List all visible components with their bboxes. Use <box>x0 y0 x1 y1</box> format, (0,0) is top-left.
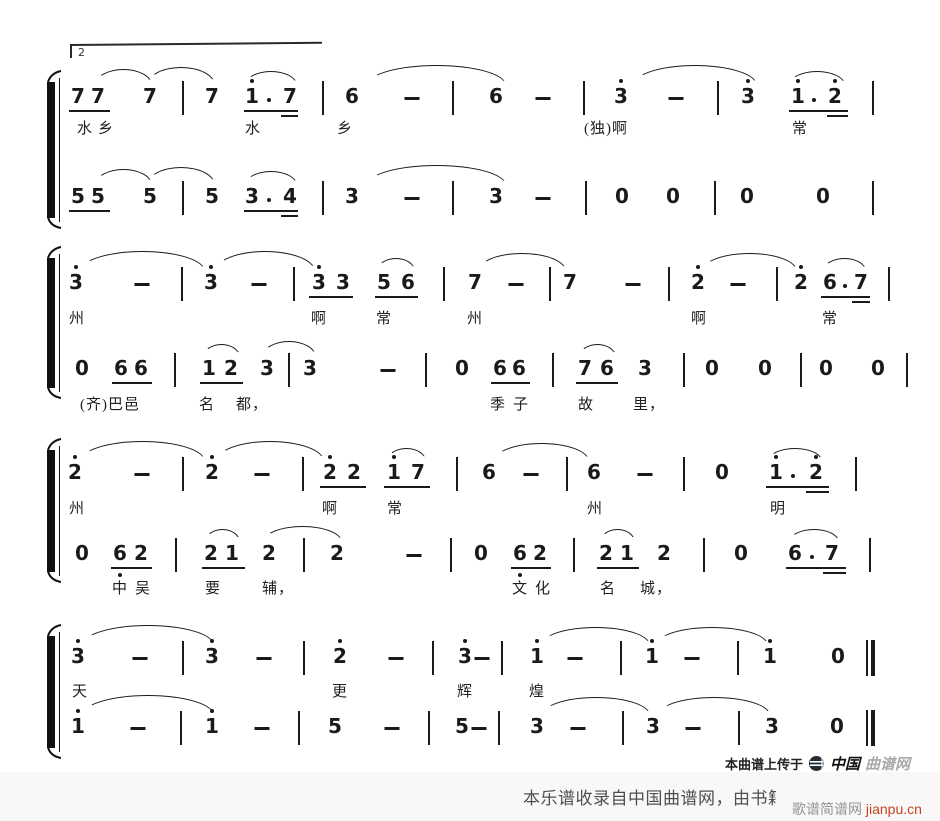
octave-dot-below <box>118 573 122 577</box>
slur-arc <box>600 529 635 542</box>
note: 3 <box>336 272 350 292</box>
system-bracket-hook-bottom <box>46 386 62 405</box>
barline <box>303 538 305 572</box>
slur-arc <box>656 627 768 645</box>
lyric-syllable: 州 <box>69 500 85 518</box>
duration-dash <box>135 473 150 476</box>
duration-dash <box>407 554 422 557</box>
beam-line-2 <box>806 491 829 493</box>
barline <box>683 457 685 491</box>
lyric-syllable: 要 <box>205 580 221 598</box>
slur-arc <box>215 251 315 271</box>
note: 2 <box>599 543 613 563</box>
note: 2 <box>330 543 344 563</box>
barline <box>583 81 585 115</box>
barline <box>452 81 454 115</box>
note: 3 <box>646 716 660 736</box>
barline <box>549 267 551 301</box>
gepu-site-label: 歌谱简谱网 <box>792 801 862 817</box>
barline <box>428 711 430 745</box>
note: 0 <box>816 186 830 206</box>
duration-dash <box>669 97 684 100</box>
lyric-syllable: 啊 <box>322 500 338 518</box>
note: 5 <box>143 186 157 206</box>
lyric-syllable: 城， <box>640 580 672 598</box>
beam-line <box>320 486 366 488</box>
lyric-syllable: 都， <box>236 396 268 414</box>
site-name-suffix: 曲谱网 <box>865 753 910 774</box>
note: 1 <box>71 716 85 736</box>
note: 0 <box>734 543 748 563</box>
note: 0 <box>819 358 833 378</box>
octave-dot-above <box>76 639 80 643</box>
lyric-syllable: 天 <box>72 683 88 701</box>
note: 6 <box>513 543 527 563</box>
volta-label: 2 <box>78 46 85 59</box>
slur-arc <box>789 71 845 85</box>
barline <box>181 267 183 301</box>
system-bracket-hook-top <box>46 245 62 264</box>
volta-tick <box>70 44 72 58</box>
note: 6 <box>482 462 496 482</box>
lyric-syllable: 辅， <box>262 580 294 598</box>
beam-line <box>786 567 846 569</box>
lyric-syllable: 常 <box>387 500 403 518</box>
beam-line <box>112 382 152 384</box>
note: 7 <box>71 86 85 106</box>
duration-dash <box>257 657 272 660</box>
duration-dash <box>389 657 404 660</box>
gepu-credit: 歌谱简谱网 jianpu.cn <box>792 799 922 819</box>
note: 0 <box>871 358 885 378</box>
note: 1 <box>645 646 659 666</box>
note: 3 <box>345 186 359 206</box>
system-bracket-hook-bottom <box>46 216 62 235</box>
barline <box>620 641 622 675</box>
note: 3 <box>489 186 503 206</box>
barline <box>432 641 434 675</box>
duration-dash <box>568 657 583 660</box>
barline <box>180 711 182 745</box>
note: 1 <box>620 543 634 563</box>
lyric-syllable: 明 <box>770 500 786 518</box>
duration-dash <box>135 283 150 286</box>
barline <box>293 267 295 301</box>
barline <box>668 267 670 301</box>
slur-arc <box>95 169 152 185</box>
octave-dot-above <box>650 639 654 643</box>
note: 3 <box>260 358 274 378</box>
slur-arc <box>633 65 757 85</box>
barline <box>425 353 427 387</box>
barline <box>906 353 908 387</box>
beam-line-2 <box>281 215 298 217</box>
barline <box>776 267 778 301</box>
note: 0 <box>830 716 844 736</box>
barline <box>182 181 184 215</box>
duration-dash <box>626 283 641 286</box>
note: 1 <box>530 646 544 666</box>
lyric-syllable: 里， <box>633 396 665 414</box>
note: 7 <box>578 358 592 378</box>
barline <box>303 641 305 675</box>
note: 2 <box>533 543 547 563</box>
octave-dot-below <box>518 573 522 577</box>
note: 3 <box>69 272 83 292</box>
note: 1 <box>202 358 216 378</box>
barline <box>855 457 857 491</box>
lyric-syllable: 州 <box>467 310 483 328</box>
barline <box>302 457 304 491</box>
final-barline-thick <box>871 640 875 676</box>
lyric-syllable: 常 <box>822 310 838 328</box>
slur-arc <box>768 448 822 461</box>
lyric-syllable: 煌 <box>529 683 545 701</box>
barline <box>443 267 445 301</box>
note: 5 <box>71 186 85 206</box>
duration-dash <box>475 657 490 660</box>
beam-line <box>491 382 530 384</box>
lyric-syllable: (齐)巴邑 <box>80 396 140 414</box>
augmentation-dot <box>812 98 816 102</box>
system-bracket <box>47 636 55 748</box>
duration-dash <box>133 657 148 660</box>
upload-credit: 本曲谱上传于 中国曲谱网 <box>725 753 910 774</box>
barline <box>869 538 871 572</box>
note: 3 <box>765 716 779 736</box>
barline <box>182 641 184 675</box>
note: 2 <box>347 462 361 482</box>
note: 6 <box>493 358 507 378</box>
note: 6 <box>600 358 614 378</box>
system-bracket-hook-top <box>46 69 62 88</box>
note: 6 <box>823 272 837 292</box>
note: 7 <box>563 272 577 292</box>
system-bracket-line <box>59 254 60 392</box>
augmentation-dot <box>267 198 271 202</box>
barline <box>872 81 874 115</box>
system-bracket <box>47 450 55 572</box>
beam-line <box>821 296 870 298</box>
lyric-syllable: 文 <box>512 580 528 598</box>
slur-arc <box>541 627 650 645</box>
lyric-syllable: 子 <box>513 396 529 414</box>
octave-dot-above <box>76 709 80 713</box>
beam-line <box>244 210 298 212</box>
barline <box>800 353 802 387</box>
note: 1 <box>769 462 783 482</box>
slur-arc <box>387 448 426 461</box>
barline <box>322 81 324 115</box>
slur-arc <box>542 697 650 715</box>
barline <box>717 81 719 115</box>
barline <box>872 181 874 215</box>
duration-dash <box>509 283 524 286</box>
augmentation-dot <box>810 555 814 559</box>
collection-note-text: 本乐谱收录自中国曲谱网，由书 <box>523 789 768 808</box>
note: 3 <box>312 272 326 292</box>
duration-dash <box>381 369 396 372</box>
barline <box>174 353 176 387</box>
final-barline-thin <box>866 640 868 676</box>
slur-arc <box>216 441 324 461</box>
note: 3 <box>614 86 628 106</box>
barline <box>501 641 503 675</box>
note: 3 <box>205 646 219 666</box>
barline <box>288 353 290 387</box>
lyric-syllable: 名 <box>600 580 616 598</box>
beam-line-2 <box>281 115 298 117</box>
note: 1 <box>225 543 239 563</box>
note: 6 <box>345 86 359 106</box>
octave-dot-above <box>338 639 342 643</box>
duration-dash <box>252 283 267 286</box>
beam-line <box>244 110 298 112</box>
lyric-syllable: 州 <box>587 500 603 518</box>
lyric-syllable: 名 <box>199 396 215 414</box>
octave-dot-above <box>328 455 332 459</box>
note: 0 <box>758 358 772 378</box>
lyric-syllable: 水 <box>77 120 93 138</box>
barline <box>175 538 177 572</box>
note: 0 <box>715 462 729 482</box>
barline <box>552 353 554 387</box>
beam-line <box>766 486 829 488</box>
slur-arc <box>579 344 616 357</box>
slur-arc <box>82 695 214 715</box>
note: 1 <box>791 86 805 106</box>
note: 7 <box>854 272 868 292</box>
note: 7 <box>91 86 105 106</box>
barline <box>738 711 740 745</box>
lyric-syllable: 辉 <box>457 683 473 701</box>
note: 1 <box>205 716 219 736</box>
note: 1 <box>387 462 401 482</box>
note: 7 <box>205 86 219 106</box>
barline <box>683 353 685 387</box>
note: 6 <box>587 462 601 482</box>
barline <box>714 181 716 215</box>
note: 2 <box>204 543 218 563</box>
barline <box>703 538 705 572</box>
duration-dash <box>524 473 539 476</box>
note: 3 <box>458 646 472 666</box>
qupu-logo-icon <box>808 755 825 772</box>
note: 6 <box>134 358 148 378</box>
augmentation-dot <box>843 284 847 288</box>
lyric-syllable: 常 <box>792 120 808 138</box>
note: 2 <box>691 272 705 292</box>
note: 7 <box>825 543 839 563</box>
beam-line <box>111 567 152 569</box>
octave-dot-above <box>209 265 213 269</box>
note: 2 <box>809 462 823 482</box>
barline <box>182 81 184 115</box>
system-bracket-hook-top <box>46 623 62 642</box>
note: 2 <box>68 462 82 482</box>
lyric-syllable: 吴 <box>135 580 151 598</box>
note: 1 <box>245 86 259 106</box>
barline <box>737 641 739 675</box>
slur-arc <box>245 171 297 185</box>
duration-dash <box>405 197 420 200</box>
augmentation-dot <box>267 98 271 102</box>
barline <box>452 181 454 215</box>
system-bracket-line <box>59 78 60 222</box>
note: 7 <box>143 86 157 106</box>
site-name-cn: 中国 <box>830 753 860 774</box>
jianpu-link[interactable]: jianpu.cn <box>866 801 922 817</box>
note: 7 <box>283 86 297 106</box>
note: 2 <box>333 646 347 666</box>
beam-line <box>375 296 418 298</box>
slur-arc <box>245 71 297 85</box>
duration-dash <box>255 473 270 476</box>
barline <box>566 457 568 491</box>
note: 0 <box>831 646 845 666</box>
note: 6 <box>113 543 127 563</box>
duration-dash <box>686 727 701 730</box>
lyric-syllable: 中 <box>112 580 128 598</box>
system-bracket <box>47 258 55 388</box>
beam-line <box>309 296 353 298</box>
note: 2 <box>224 358 238 378</box>
octave-dot-above <box>799 265 803 269</box>
octave-dot-above <box>463 639 467 643</box>
note: 6 <box>401 272 415 292</box>
note: 6 <box>114 358 128 378</box>
slur-arc <box>147 67 215 85</box>
barline <box>888 267 890 301</box>
beam-line <box>511 567 551 569</box>
lyric-syllable: 水 <box>245 120 261 138</box>
slur-arc <box>82 625 214 645</box>
duration-dash <box>405 97 420 100</box>
beam-line <box>597 567 639 569</box>
final-barline-thin <box>866 710 868 746</box>
lyric-syllable: 乡 <box>337 120 353 138</box>
note: 0 <box>75 543 89 563</box>
collection-note: 本乐谱收录自中国曲谱网，由书籍 <box>523 784 776 809</box>
barline <box>585 181 587 215</box>
slur-arc <box>478 253 566 271</box>
note: 0 <box>474 543 488 563</box>
system-bracket <box>47 82 55 218</box>
note: 0 <box>705 358 719 378</box>
octave-dot-above <box>317 265 321 269</box>
slur-arc <box>377 258 415 271</box>
beam-line <box>202 567 245 569</box>
note: 2 <box>828 86 842 106</box>
slur-arc <box>494 443 589 461</box>
note: 2 <box>657 543 671 563</box>
duration-dash <box>536 197 551 200</box>
octave-dot-above <box>619 79 623 83</box>
octave-dot-above <box>535 639 539 643</box>
note: 3 <box>530 716 544 736</box>
duration-dash <box>685 657 700 660</box>
system-bracket-line <box>59 632 60 752</box>
duration-dash <box>385 727 400 730</box>
note: 0 <box>75 358 89 378</box>
lyric-syllable: 常 <box>376 310 392 328</box>
note: 1 <box>763 646 777 666</box>
augmentation-dot <box>791 474 795 478</box>
barline <box>573 538 575 572</box>
system-bracket-hook-bottom <box>46 570 62 589</box>
duration-dash <box>638 473 653 476</box>
final-barline-thick <box>871 710 875 746</box>
slur-arc <box>823 258 866 271</box>
note: 3 <box>204 272 218 292</box>
volta-line <box>70 42 322 46</box>
beam-line <box>69 110 110 112</box>
note: 5 <box>91 186 105 206</box>
note: 3 <box>638 358 652 378</box>
beam-line-2 <box>823 572 846 574</box>
note: 7 <box>468 272 482 292</box>
octave-dot-above <box>74 265 78 269</box>
note: 2 <box>262 543 276 563</box>
slur-arc <box>205 529 240 542</box>
note: 5 <box>455 716 469 736</box>
lyric-syllable: 故 <box>578 396 594 414</box>
upload-credit-text: 本曲谱上传于 <box>725 754 803 773</box>
slur-arc <box>203 344 240 357</box>
lyric-syllable: 啊 <box>691 310 707 328</box>
beam-line <box>789 110 848 112</box>
barline <box>322 181 324 215</box>
note: 5 <box>328 716 342 736</box>
collection-note-clipped: 籍 <box>768 784 776 809</box>
barline <box>498 711 500 745</box>
slur-arc <box>147 167 215 185</box>
slur-arc <box>95 69 152 85</box>
note: 6 <box>512 358 526 378</box>
lyric-syllable: 更 <box>332 683 348 701</box>
slur-arc <box>80 251 205 271</box>
beam-line <box>384 486 430 488</box>
octave-dot-above <box>210 455 214 459</box>
duration-dash <box>571 727 586 730</box>
slur-arc <box>658 697 770 715</box>
slur-arc <box>262 341 316 357</box>
octave-dot-above <box>768 639 772 643</box>
note: 0 <box>615 186 629 206</box>
beam-line <box>69 210 110 212</box>
slur-arc <box>80 441 205 461</box>
octave-dot-above <box>73 455 77 459</box>
note: 3 <box>303 358 317 378</box>
beam-line-2 <box>852 301 870 303</box>
lyric-syllable: 啊 <box>311 310 327 328</box>
slur-arc <box>367 165 506 185</box>
beam-line-2 <box>827 115 848 117</box>
duration-dash <box>255 727 270 730</box>
barline <box>622 711 624 745</box>
octave-dot-above <box>696 265 700 269</box>
note: 2 <box>794 272 808 292</box>
duration-dash <box>472 727 487 730</box>
note: 0 <box>740 186 754 206</box>
note: 2 <box>323 462 337 482</box>
lyric-syllable: 州 <box>69 310 85 328</box>
duration-dash <box>131 727 146 730</box>
system-bracket-line <box>59 446 60 576</box>
note: 0 <box>455 358 469 378</box>
note: 5 <box>377 272 391 292</box>
beam-line <box>200 382 243 384</box>
